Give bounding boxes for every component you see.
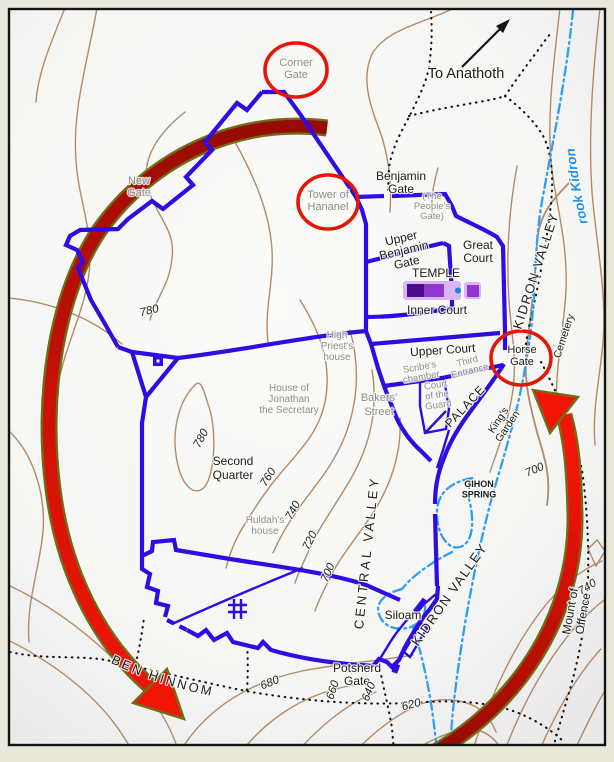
temple-annex-block xyxy=(467,285,479,297)
jerusalem-map: CornerGateTo AnathothThe Brook KidronNew… xyxy=(0,0,614,762)
gate-marker-center xyxy=(157,360,160,363)
temple-holy-of-holies-block xyxy=(407,284,424,297)
label-gihon-spring: GIHONSPRING xyxy=(462,479,497,500)
label-temple: TEMPLE xyxy=(412,266,460,280)
temple-altar-dot xyxy=(455,288,461,294)
label-huldahs-house: Huldah'shouse xyxy=(246,515,285,537)
label-horse-gate: HorseGate xyxy=(507,344,536,368)
label-siloam: Siloam xyxy=(385,608,422,622)
label-to-anathoth: To Anathoth xyxy=(428,66,505,82)
label-second-quarter: SecondQuarter xyxy=(213,454,254,482)
temple-holy-place-block xyxy=(424,284,444,297)
label-new-gate: NewGate xyxy=(127,175,151,199)
label-great-court: GreatCourt xyxy=(463,238,494,265)
temple-structure xyxy=(403,281,481,300)
map-canvas: CornerGateTo AnathothThe Brook KidronNew… xyxy=(0,0,614,762)
label-tower-of-hananel: Tower ofHananel xyxy=(307,189,350,213)
label-inner-court: Inner Court xyxy=(407,303,468,317)
